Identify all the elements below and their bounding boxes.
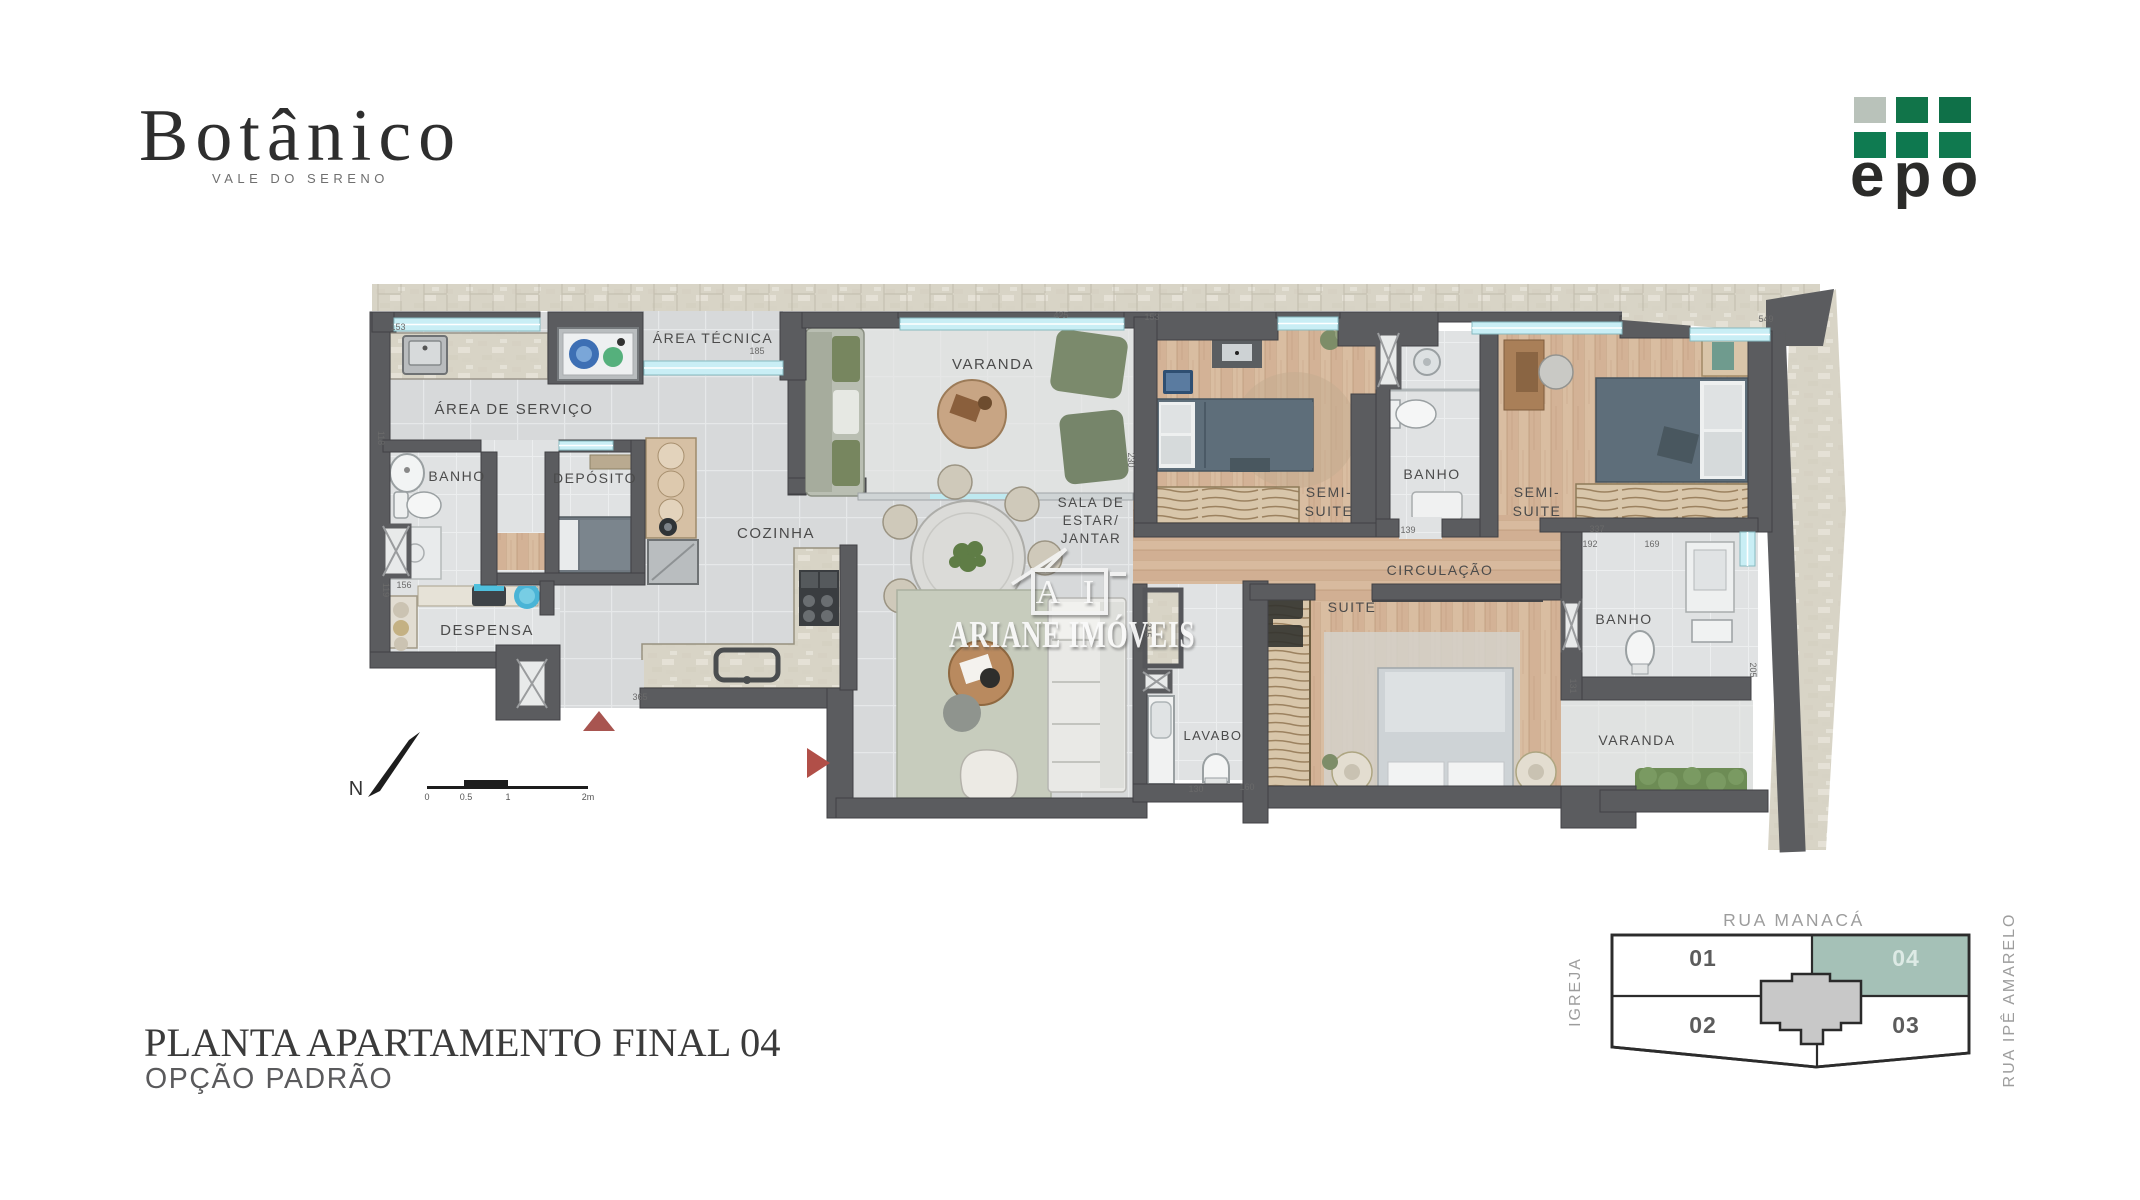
svg-text:139: 139 (1400, 525, 1415, 535)
svg-text:156: 156 (396, 580, 411, 590)
svg-text:SALA DE: SALA DE (1058, 495, 1125, 510)
svg-text:131: 131 (1568, 678, 1578, 693)
svg-text:04: 04 (1892, 945, 1920, 971)
svg-text:169: 169 (1644, 539, 1659, 549)
svg-text:03: 03 (1892, 1012, 1920, 1038)
svg-text:N: N (349, 778, 363, 800)
svg-text:IGREJA: IGREJA (1567, 957, 1584, 1027)
svg-text:02: 02 (1689, 1012, 1717, 1038)
svg-text:LAVABO: LAVABO (1183, 728, 1242, 743)
svg-text:SEMI-: SEMI- (1514, 484, 1560, 500)
svg-text:SUITE: SUITE (1513, 503, 1562, 519)
svg-text:VARANDA: VARANDA (952, 356, 1034, 373)
svg-text:337: 337 (1589, 524, 1604, 534)
svg-text:549: 549 (1758, 314, 1773, 324)
svg-text:A I: A I (1036, 574, 1103, 611)
svg-text:COZINHA: COZINHA (737, 525, 815, 542)
svg-text:ESTAR/: ESTAR/ (1063, 513, 1120, 528)
svg-text:Botânico: Botânico (139, 95, 462, 177)
svg-text:192: 192 (1582, 539, 1597, 549)
svg-text:RUA MANACÁ: RUA MANACÁ (1723, 910, 1865, 930)
svg-text:BANHO: BANHO (1595, 611, 1652, 627)
svg-text:OPÇÃO PADRÃO: OPÇÃO PADRÃO (145, 1063, 393, 1095)
svg-text:185: 185 (749, 346, 764, 356)
svg-text:DEPÓSITO: DEPÓSITO (553, 470, 637, 486)
svg-text:160: 160 (1239, 782, 1254, 792)
svg-text:VALE DO SERENO: VALE DO SERENO (212, 171, 389, 186)
svg-text:118: 118 (376, 431, 386, 445)
svg-text:153: 153 (1144, 312, 1159, 322)
svg-text:VARANDA: VARANDA (1598, 732, 1675, 748)
svg-text:205: 205 (1748, 662, 1758, 677)
svg-text:0.5: 0.5 (460, 792, 473, 802)
svg-text:ÁREA TÉCNICA: ÁREA TÉCNICA (653, 330, 773, 346)
svg-text:ÁREA DE SERVIÇO: ÁREA DE SERVIÇO (435, 401, 594, 418)
svg-text:425: 425 (1053, 310, 1068, 320)
svg-text:SUITE: SUITE (1328, 599, 1377, 615)
svg-text:DESPENSA: DESPENSA (440, 622, 534, 639)
svg-text:BANHO: BANHO (428, 468, 485, 484)
svg-text:119: 119 (381, 583, 391, 597)
svg-text:JANTAR: JANTAR (1061, 531, 1122, 546)
svg-text:365: 365 (632, 692, 647, 702)
svg-text:230: 230 (1126, 452, 1136, 467)
svg-text:SEMI-: SEMI- (1306, 484, 1352, 500)
svg-text:ARIANE IMÓVEIS: ARIANE IMÓVEIS (949, 613, 1195, 657)
svg-text:0: 0 (424, 792, 429, 802)
svg-text:1: 1 (505, 792, 510, 802)
svg-text:2m: 2m (582, 792, 595, 802)
svg-text:epo: epo (1850, 141, 1987, 210)
svg-text:01: 01 (1689, 945, 1717, 971)
svg-text:RUA IPÊ AMARELO: RUA IPÊ AMARELO (1999, 913, 2018, 1088)
svg-text:153: 153 (390, 322, 405, 332)
svg-text:CIRCULAÇÃO: CIRCULAÇÃO (1387, 562, 1494, 578)
svg-text:SUITE: SUITE (1305, 503, 1354, 519)
svg-text:130: 130 (1188, 784, 1203, 794)
svg-text:BANHO: BANHO (1403, 466, 1460, 482)
svg-text:PLANTA APARTAMENTO FINAL 04: PLANTA APARTAMENTO FINAL 04 (144, 1020, 781, 1065)
